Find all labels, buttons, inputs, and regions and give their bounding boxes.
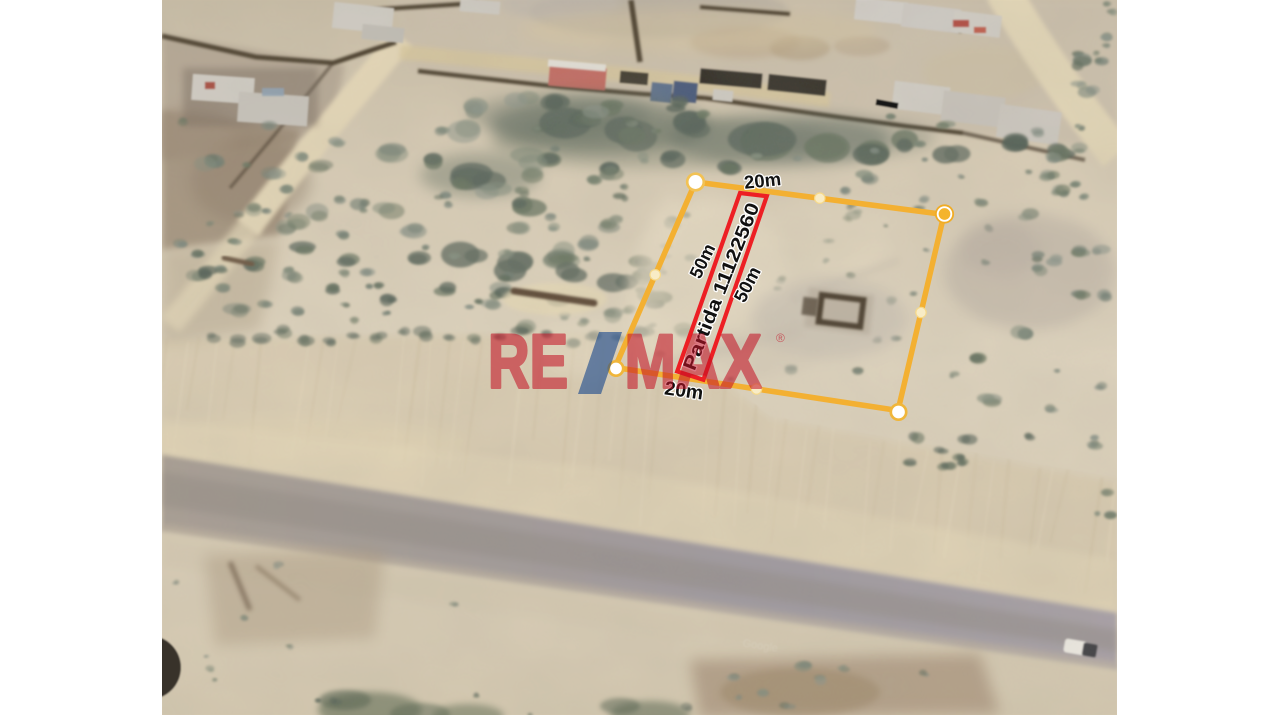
svg-text:20m: 20m xyxy=(743,168,782,193)
svg-text:RE: RE xyxy=(488,320,568,405)
svg-text:®: ® xyxy=(776,331,785,345)
svg-text:MAX: MAX xyxy=(625,320,762,405)
